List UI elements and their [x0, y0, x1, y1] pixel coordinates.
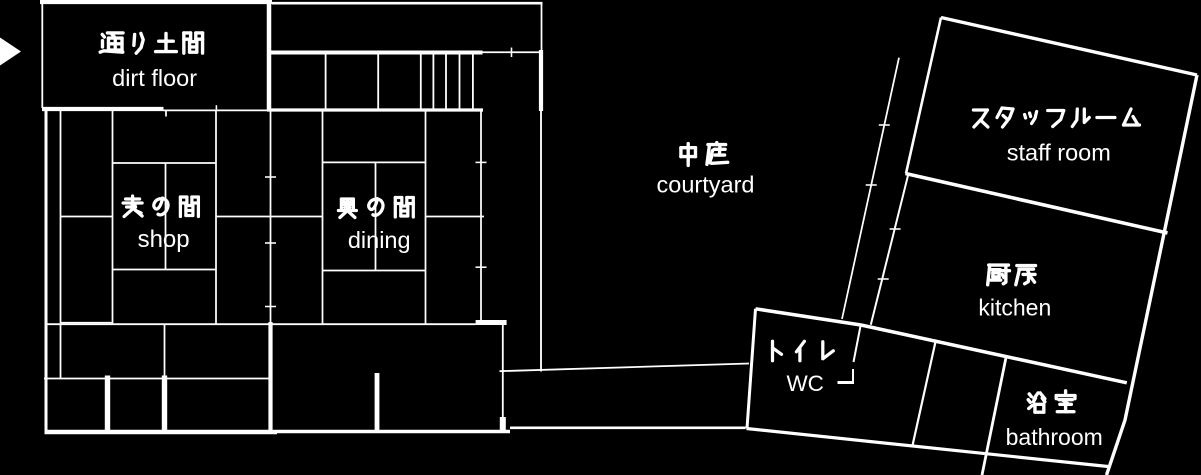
- svg-text:WC: WC: [786, 371, 824, 396]
- svg-text:kitchen: kitchen: [978, 295, 1051, 321]
- svg-text:dirt floor: dirt floor: [112, 65, 197, 91]
- svg-text:bathroom: bathroom: [1006, 424, 1103, 450]
- svg-text:staff room: staff room: [1007, 140, 1111, 166]
- svg-text:dining: dining: [348, 227, 411, 253]
- svg-text:shop: shop: [138, 226, 190, 253]
- svg-text:courtyard: courtyard: [657, 172, 755, 198]
